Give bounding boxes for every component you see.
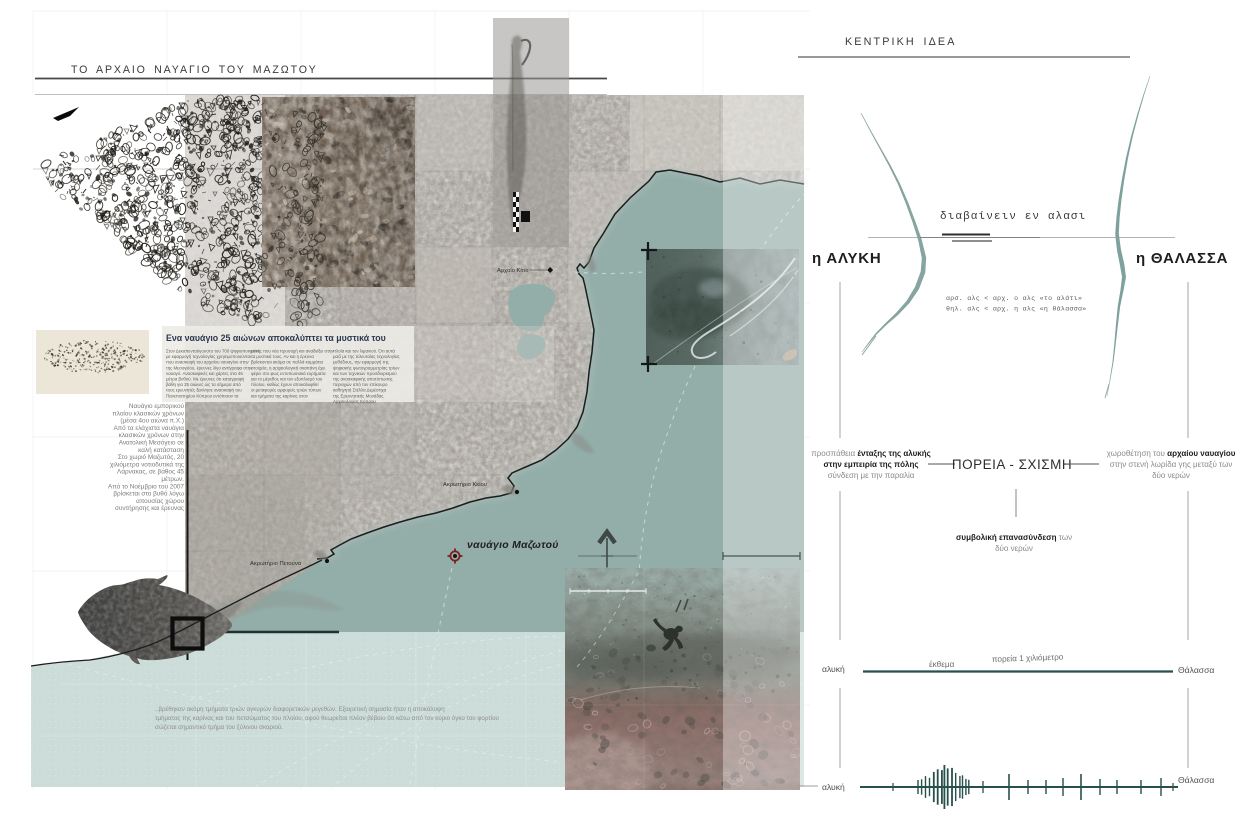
svg-text:πλοίου κλασικών χρόνων: πλοίου κλασικών χρόνων (112, 409, 184, 417)
svg-text:Θάλασσα: Θάλασσα (1178, 665, 1214, 675)
svg-text:σώζεται σημαντικό τμήμα του ξύ: σώζεται σημαντικό τμήμα του ξύλινου σκαρ… (155, 724, 283, 731)
svg-text:πλοίου, καθώς έχουν αποκαλυφθε: πλοίου, καθώς έχουν αποκαλυφθεί (251, 382, 319, 387)
svg-text:η ΑΛΥΚΗ: η ΑΛΥΚΗ (812, 250, 882, 267)
svg-text:η ΘΑΛΑΣΣΑ: η ΘΑΛΑΣΣΑ (1136, 250, 1228, 267)
svg-text:δύο νερών: δύο νερών (1152, 471, 1190, 480)
svg-text:στην εμπειρία της πόλης: στην εμπειρία της πόλης (823, 460, 918, 469)
svg-text:τους ερευνητές ξεκίνησε ανασκα: τους ερευνητές ξεκίνησε ανασκαφή του (166, 388, 242, 393)
svg-text:ναυαγό. Ανασκαφικές και χάρτες: ναυαγό. Ανασκαφικές και χάρτες στα 45 (166, 371, 243, 376)
svg-text:περιοχών από τον επίκουρο: περιοχών από τον επίκουρο (333, 382, 388, 387)
svg-text:(μέσα 4ου αιώνα π.Χ.): (μέσα 4ου αιώνα π.Χ.) (120, 417, 184, 425)
svg-text:ΚΕΝΤΡΙΚΗ ΙΔΕΑ: ΚΕΝΤΡΙΚΗ ΙΔΕΑ (845, 36, 957, 48)
svg-text:για το μέγεθος και τον εξοπλισ: για το μέγεθος και τον εξοπλισμό του (251, 377, 323, 382)
svg-text:Από το Νοέμβριο του 2007: Από το Νοέμβριο του 2007 (108, 482, 184, 490)
svg-text:που ανασκαφή του αρχαίου ναυαγ: που ανασκαφή του αρχαίου ναυαγίου στην (166, 360, 250, 365)
svg-text:Ακρωτήριο Πετούνα: Ακρωτήριο Πετούνα (250, 560, 302, 567)
svg-text:της Μεσογείου, έρευνες λίγο αν: της Μεσογείου, έρευνες λίγο αντίγραφα στ… (166, 365, 253, 370)
svg-text:Ναυάγιο εμπορικού: Ναυάγιο εμπορικού (129, 402, 185, 410)
svg-text:ψηφιακής φωτογραμμετρίας τρίων: ψηφιακής φωτογραμμετρίας τρίων (333, 365, 400, 370)
svg-text:καλή κατάσταση: καλή κατάσταση (138, 446, 184, 454)
svg-text:οι μεταφορές αμφορείς τριών τύ: οι μεταφορές αμφορείς τριών τύπων (251, 388, 322, 393)
svg-text:ναυάγιο Μαζωτού: ναυάγιο Μαζωτού (467, 540, 559, 551)
svg-text:μέτρων.: μέτρων. (161, 475, 184, 483)
svg-text:και των τεχνικών προσδιορισμού: και των τεχνικών προσδιορισμού (333, 371, 397, 376)
svg-text:αλυκή: αλυκή (822, 664, 845, 674)
svg-text:συντήρησης και έρευνας: συντήρησης και έρευνας (115, 504, 184, 512)
svg-text:βάθη για 25 αιώνες ώς τα σήμερ: βάθη για 25 αιώνες ώς τα σήμερα από (166, 382, 241, 387)
svg-text:..βρέθηκαν ακόμη τμήματα τριών: ..βρέθηκαν ακόμη τμήματα τριών αγκυρών δ… (155, 706, 445, 713)
svg-text:βρίσκονται ακόμα σε πολλά κομμ: βρίσκονται ακόμα σε πολλά κομμάτια (251, 360, 323, 365)
svg-text:πλοία και τον λιμανιού. Ότι αυ: πλοία και τον λιμανιού. Ότι αυτά (333, 349, 395, 354)
svg-text:φέρει στο φως εντυπωσιακά ευρή: φέρει στο φως εντυπωσιακά ευρήματα (251, 371, 326, 376)
svg-text:καθηγητή Στέλλα Δεμέστιχα: καθηγητή Στέλλα Δεμέστιχα (333, 388, 387, 393)
svg-text:στοιχεία, η αρχαιολογική σκαπά: στοιχεία, η αρχαιολογική σκαπάνη έχει (251, 365, 325, 370)
svg-text:Αρχαιολογίας Κύπρου: Αρχαιολογίας Κύπρου (333, 399, 376, 404)
svg-text:αρσ. αλς < αρχ. ο αλς «το αλάτ: αρσ. αλς < αρχ. ο αλς «το αλάτι» (946, 295, 1082, 302)
svg-text:της ανασκαφικής αποτύπωσης: της ανασκαφικής αποτύπωσης (333, 377, 393, 382)
svg-text:χιλιόμετρα νοτιοδυτικά της: χιλιόμετρα νοτιοδυτικά της (110, 460, 184, 468)
svg-text:και τμήματα της καρίνας στον: και τμήματα της καρίνας στον (251, 393, 309, 398)
svg-text:ΤΟ ΑΡΧΑΙΟ ΝΑΥΑΓΙΟ ΤΟΥ ΜΑΖΩΤΟΥ: ΤΟ ΑΡΧΑΙΟ ΝΑΥΑΓΙΟ ΤΟΥ ΜΑΖΩΤΟΥ (71, 64, 318, 76)
svg-text:δύο νερών: δύο νερών (995, 544, 1033, 553)
svg-text:κλασικών χρόνων στην: κλασικών χρόνων στην (119, 431, 184, 439)
svg-text:Ανατολική Μεσόγειο σε: Ανατολική Μεσόγειο σε (119, 439, 184, 447)
svg-text:Ενα ναυάγιο 25 αιώνων αποκαλύπ: Ενα ναυάγιο 25 αιώνων αποκαλύπτει τα μυσ… (166, 333, 386, 343)
svg-text:Ακρωτήριο Κκίου: Ακρωτήριο Κκίου (443, 481, 487, 488)
svg-text:ΠΟΡΕΙΑ - ΣΧΙΣΜΗ: ΠΟΡΕΙΑ - ΣΧΙΣΜΗ (952, 457, 1072, 472)
svg-text:Λάρνακας, σε βάθος 45: Λάρνακας, σε βάθος 45 (117, 468, 184, 476)
svg-text:βρίσκεται στο βυθό λόγω: βρίσκεται στο βυθό λόγω (113, 490, 184, 498)
svg-text:μεθόδους, την εφαρμογή της: μεθόδους, την εφαρμογή της (333, 360, 389, 365)
svg-text:τα μυστικά τους. Αν και η έρευ: τα μυστικά τους. Αν και η έρευνα (251, 354, 314, 359)
svg-text:Αρχαίο Κίτιο: Αρχαίο Κίτιο (497, 268, 528, 274)
svg-text:μαζί με της τελευταίας τεχνολο: μαζί με της τελευταίας τεχνολογίας (333, 354, 400, 359)
svg-text:διαβαίνειν εν αλασι: διαβαίνειν εν αλασι (940, 211, 1086, 223)
svg-text:με εφαρμογή τεχνολογίας χρησιμ: με εφαρμογή τεχνολογίας χρησιμοποιούνται (166, 354, 251, 359)
svg-text:έκθεμα: έκθεμα (929, 660, 955, 669)
svg-text:Από τα ελάχιστα ναυάγια: Από τα ελάχιστα ναυάγια (113, 424, 184, 432)
svg-text:χωροθέτηση του αρχαίου ναυαγίο: χωροθέτηση του αρχαίου ναυαγίου (1107, 449, 1236, 458)
svg-text:προσπάθεια ένταξης της αλυκής: προσπάθεια ένταξης της αλυκής (811, 449, 931, 458)
svg-text:αυτές που νέα προσοχή και αναδ: αυτές που νέα προσοχή και αναδείξει στην (251, 349, 334, 354)
svg-text:Στο χωριό Μαζωτός, 20: Στο χωριό Μαζωτός, 20 (118, 453, 185, 461)
svg-text:σύνδεση με την παραλία: σύνδεση με την παραλία (828, 471, 915, 480)
svg-text:Στον Δεκαπενταύγουστο του 700: Στον Δεκαπενταύγουστο του 700 ψηφιοποιημ… (166, 349, 261, 354)
svg-text:Πανεπιστημίου Κύπρου εντόπισαν: Πανεπιστημίου Κύπρου εντόπισαν τα (166, 393, 239, 398)
svg-text:μέτρα βυθού. Με έρευνες ότι κα: μέτρα βυθού. Με έρευνες ότι καταγραφή (166, 377, 245, 382)
svg-text:θηλ. αλς < αρχ. η αλς «η θάλασ: θηλ. αλς < αρχ. η αλς «η θάλασσα» (946, 306, 1086, 313)
svg-text:τμήματος της καρίνας και του π: τμήματος της καρίνας και του πετσώματος … (155, 715, 500, 722)
svg-text:Θάλασσα: Θάλασσα (1178, 775, 1214, 785)
svg-text:στην στενή λωρίδα γης μεταξύ τ: στην στενή λωρίδα γης μεταξύ των (1110, 460, 1233, 469)
svg-text:συμβολική επανασύνδεση των: συμβολική επανασύνδεση των (956, 533, 1072, 542)
svg-text:απουσίας χώρου: απουσίας χώρου (136, 497, 184, 505)
svg-text:της Ερευνητικής Μονάδας: της Ερευνητικής Μονάδας (333, 393, 384, 398)
svg-text:αλυκή: αλυκή (822, 782, 845, 792)
